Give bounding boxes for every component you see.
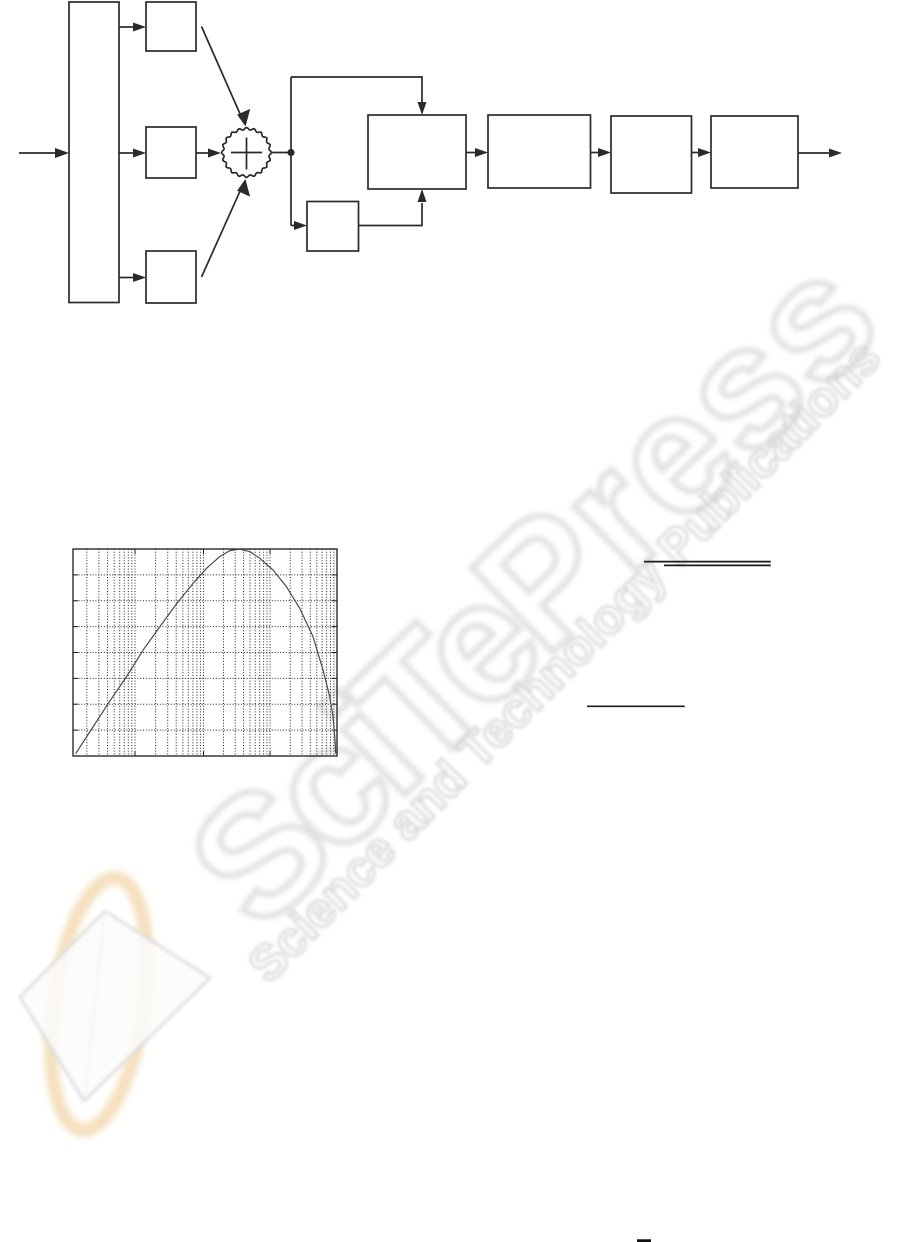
svg-text:SciTePress: SciTePress bbox=[154, 218, 901, 962]
